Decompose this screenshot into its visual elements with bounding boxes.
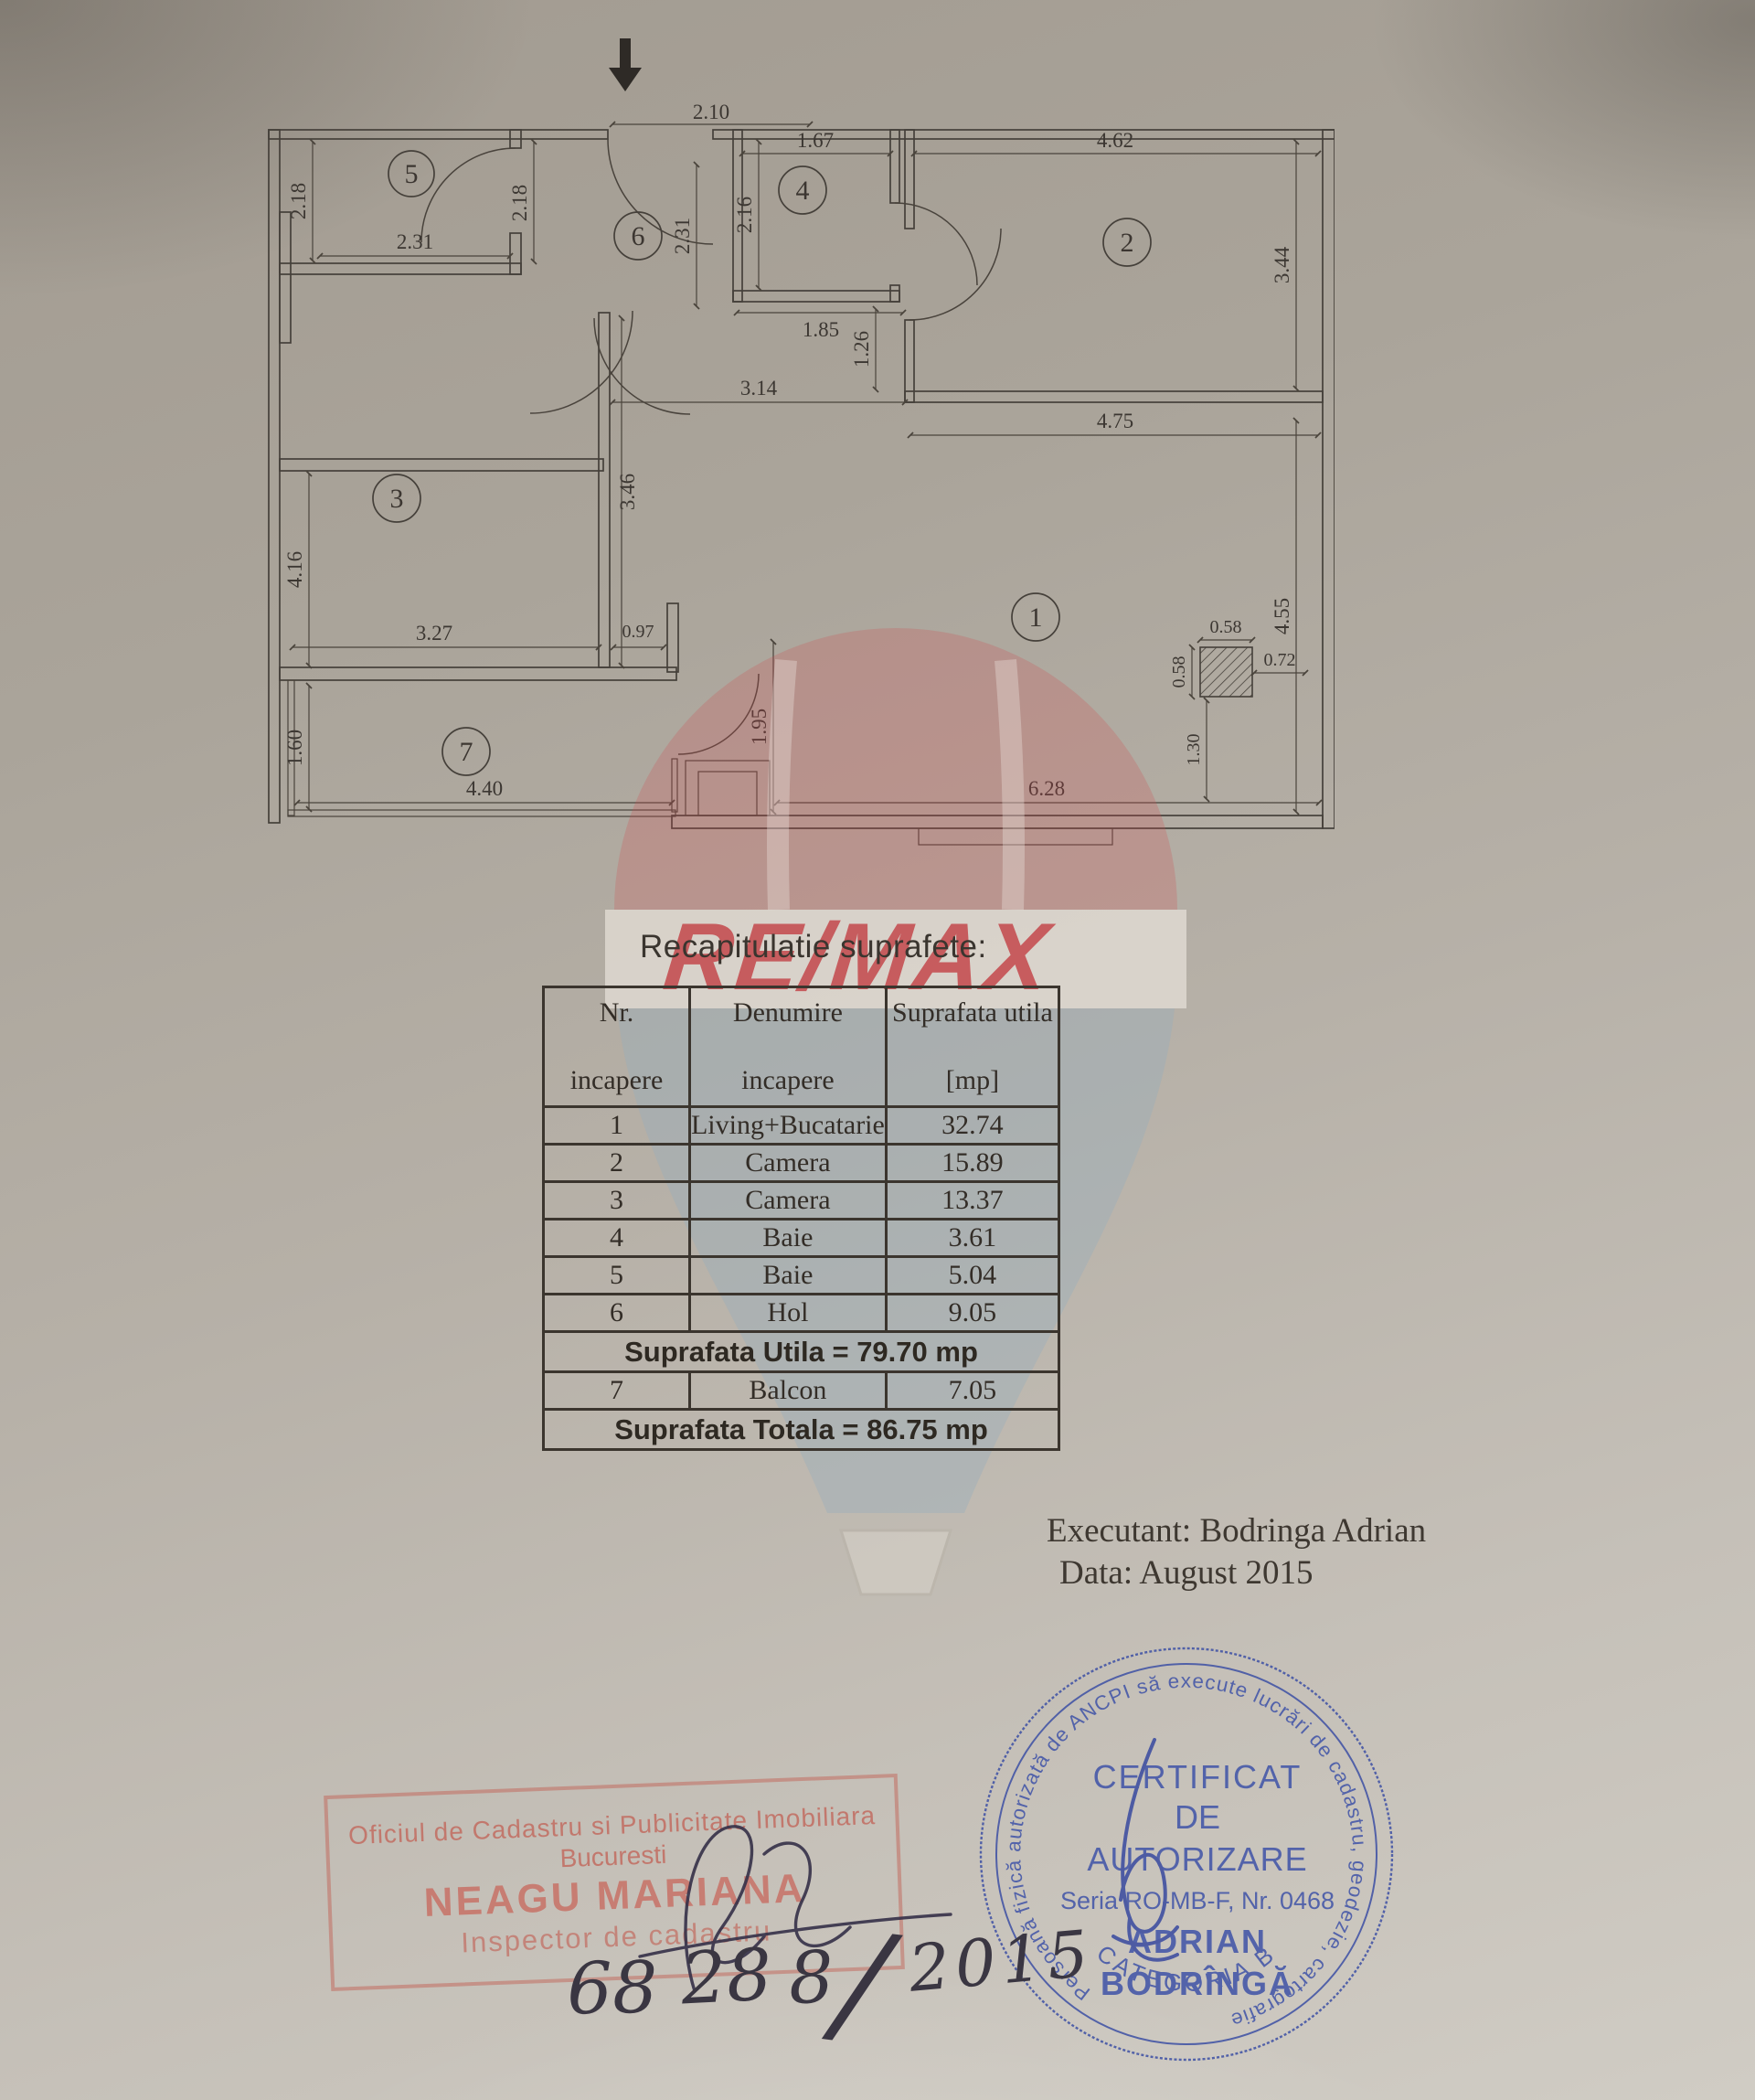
- dimension-label: 0.58: [1169, 656, 1189, 688]
- reg-number-part: 68: [567, 1947, 659, 2031]
- dimension-label: 2.31: [397, 230, 433, 253]
- col-header-denumire: Denumire: [693, 997, 883, 1029]
- dimension-label: 3.27: [416, 622, 452, 645]
- dimension-label: 3.14: [740, 377, 778, 400]
- room-number: 1: [1029, 602, 1043, 633]
- room-number: 5: [405, 159, 419, 189]
- dimension-label: 3.44: [1271, 246, 1293, 283]
- dimension-label: 1.85: [803, 318, 839, 341]
- col-header-nr: Nr.: [547, 997, 686, 1029]
- dimension-label: 2.18: [508, 185, 531, 221]
- table-row: 6 Hol 9.05: [544, 1295, 1059, 1332]
- table-row: 5 Baie 5.04: [544, 1257, 1059, 1295]
- room-number: 4: [796, 176, 810, 206]
- stamp-seria: Seria RO-MB-F, Nr. 0468: [1060, 1887, 1335, 1914]
- executant-name: Executant: Bodringa Adrian: [1047, 1510, 1426, 1552]
- dimension-label: 0.97: [622, 622, 654, 642]
- dimension-label: 4.55: [1271, 598, 1293, 634]
- document-date: Data: August 2015: [1059, 1552, 1426, 1594]
- stamp-last-name: BODRÎNGĂ: [1101, 1964, 1294, 2002]
- reg-number-part: 28: [679, 1934, 774, 2020]
- structural-column: [1200, 647, 1252, 697]
- dimension-label: 1.60: [283, 730, 306, 766]
- recap-heading: Recapitulatie suprafete:: [640, 929, 987, 965]
- stamp-certificat: CERTIFICAT: [1093, 1758, 1303, 1796]
- dimension-label: 2.18: [287, 183, 310, 219]
- areas-table: Nr. incapere Denumire incapere Suprafata…: [542, 986, 1060, 1451]
- table-row: 4 Baie 3.61: [544, 1220, 1059, 1257]
- dimension-label: 2.16: [733, 197, 756, 233]
- dimension-label: 6.28: [1028, 777, 1065, 800]
- dimension-labels: 2.10 1.67 4.62 1.85 4.75 3.14 2.31 3.27 …: [283, 101, 1296, 800]
- door-arcs: [421, 139, 1001, 754]
- suprafata-utila-band: Suprafata Utila = 79.70 mp: [544, 1332, 1059, 1372]
- stamp-de: DE: [1175, 1798, 1220, 1836]
- room-number: 6: [632, 221, 645, 251]
- stamp-autorizare: AUTORIZARE: [1087, 1840, 1307, 1878]
- table-row: 3 Camera 13.37: [544, 1182, 1059, 1220]
- dimension-label: 2.31: [671, 218, 694, 254]
- entrance-arrow-icon: [609, 38, 642, 91]
- scanned-cadastral-document: 2.10 1.67 4.62 1.85 4.75 3.14 2.31 3.27 …: [0, 0, 1755, 2100]
- handwritten-slash: /: [840, 1981, 886, 1987]
- dimension-label: 4.62: [1097, 129, 1133, 152]
- dimension-label: 4.40: [466, 777, 503, 800]
- reg-number-part: 8: [786, 1936, 835, 2020]
- suprafata-totala-band: Suprafata Totala = 86.75 mp: [544, 1410, 1059, 1450]
- dimension-label: 1.30: [1184, 734, 1204, 766]
- executant-block: Executant: Bodringa Adrian Data: August …: [1047, 1510, 1426, 1595]
- stamp-first-name: ADRIAN: [1128, 1923, 1267, 1960]
- dimension-label: 1.67: [797, 129, 834, 152]
- floor-plan-drawing: 2.10 1.67 4.62 1.85 4.75 3.14 2.31 3.27 …: [265, 37, 1335, 859]
- table-row: 1 Living+Bucatarie 32.74: [544, 1107, 1059, 1145]
- dimension-label: 1.26: [850, 331, 873, 368]
- dimension-lines: [292, 124, 1319, 812]
- table-row: 2 Camera 15.89: [544, 1145, 1059, 1182]
- dimension-label: 2.10: [693, 101, 729, 123]
- dimension-label: 1.95: [748, 709, 771, 745]
- reg-number-year: 2015: [906, 1916, 1097, 2007]
- balloon-basket: [841, 1530, 951, 1594]
- col-header-suprafata: Suprafata utila: [889, 997, 1056, 1029]
- room-number: 7: [460, 737, 473, 767]
- table-header-row: Nr. incapere Denumire incapere Suprafata…: [544, 987, 1059, 1107]
- dimension-label: 0.72: [1264, 650, 1296, 670]
- room-numbers: 5 6 4 2 3 1 7: [373, 151, 1151, 775]
- dimension-label: 3.46: [616, 474, 639, 510]
- room-number: 2: [1121, 228, 1134, 258]
- dimension-label: 0.58: [1210, 617, 1242, 637]
- room-number: 3: [390, 484, 404, 514]
- dimension-label: 4.16: [283, 551, 306, 588]
- dimension-label: 4.75: [1097, 410, 1133, 432]
- table-row-balcon: 7 Balcon 7.05: [544, 1372, 1059, 1410]
